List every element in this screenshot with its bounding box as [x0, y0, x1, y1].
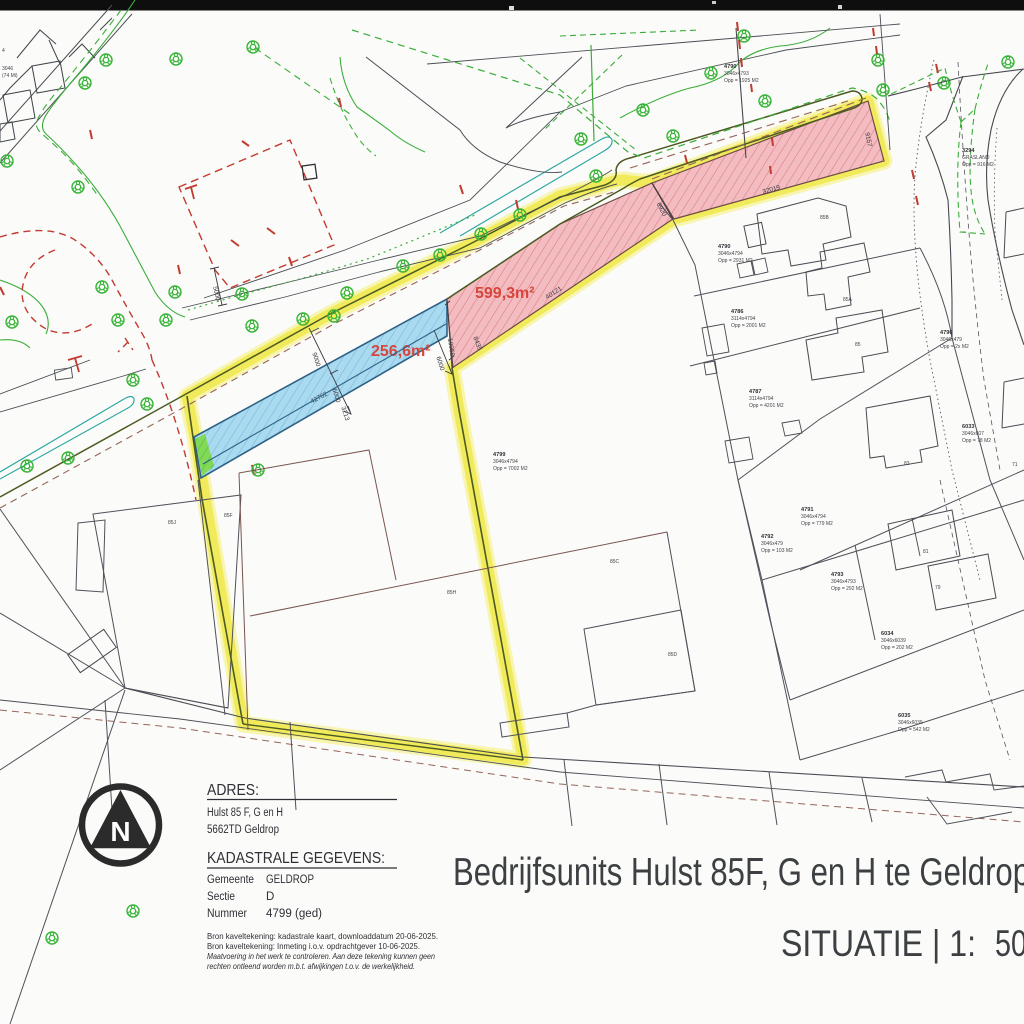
- svg-text:3114x4794: 3114x4794: [749, 396, 774, 402]
- svg-text:3046x607: 3046x607: [962, 431, 984, 437]
- svg-text:SITUATIE | 1:: SITUATIE | 1:: [781, 923, 976, 964]
- svg-text:3046x6039: 3046x6039: [881, 638, 906, 644]
- svg-text:3046x4793: 3046x4793: [831, 579, 856, 585]
- svg-text:6033: 6033: [962, 424, 974, 430]
- svg-text:Opp = 103 M2: Opp = 103 M2: [761, 548, 793, 554]
- svg-text:85B: 85B: [820, 215, 830, 221]
- svg-text:4: 4: [2, 48, 5, 54]
- svg-text:N: N: [110, 816, 130, 847]
- svg-text:Opp = 7002 M2: Opp = 7002 M2: [493, 466, 528, 472]
- svg-text:Sectie: Sectie: [207, 891, 235, 903]
- svg-text:500: 500: [995, 923, 1024, 964]
- svg-text:85H: 85H: [447, 590, 457, 596]
- svg-text:3046x4794: 3046x4794: [493, 459, 518, 465]
- svg-text:4790: 4790: [724, 64, 736, 70]
- svg-text:Bedrijfsunits Hulst 85F, G en: Bedrijfsunits Hulst 85F, G en H te Geldr…: [453, 851, 1024, 894]
- svg-text:85A: 85A: [843, 297, 853, 303]
- svg-text:KADASTRALE GEGEVENS:: KADASTRALE GEGEVENS:: [207, 850, 385, 867]
- svg-text:6034: 6034: [881, 631, 894, 637]
- svg-text:Opp = 2001 M2: Opp = 2001 M2: [731, 323, 766, 329]
- svg-text:4799 (ged): 4799 (ged): [266, 908, 322, 920]
- svg-text:Gemeente: Gemeente: [207, 874, 254, 886]
- svg-text:4787: 4787: [749, 389, 761, 395]
- svg-text:79: 79: [935, 585, 941, 591]
- svg-text:GELDROP: GELDROP: [266, 874, 314, 886]
- svg-text:Opp = 779 M2: Opp = 779 M2: [801, 521, 833, 527]
- svg-text:4790: 4790: [940, 330, 952, 336]
- svg-text:Opp = 4201 M2: Opp = 4201 M2: [749, 403, 784, 409]
- svg-text:83: 83: [904, 461, 910, 467]
- svg-text:599,3m²: 599,3m²: [475, 285, 535, 302]
- svg-text:4790: 4790: [718, 244, 730, 250]
- svg-text:Opp = 542 M2: Opp = 542 M2: [898, 727, 930, 733]
- svg-text:Bron kaveltekening: kadastrale: Bron kaveltekening: kadastrale kaart, do…: [207, 932, 438, 941]
- svg-text:Nummer: Nummer: [207, 908, 247, 920]
- svg-text:rechten ontleend worden m.b.t.: rechten ontleend worden m.b.t. afwijking…: [207, 962, 415, 971]
- svg-text:GRASLAND: GRASLAND: [962, 155, 990, 161]
- svg-text:81: 81: [923, 549, 929, 555]
- svg-text:4799: 4799: [493, 452, 505, 458]
- svg-text:Opp = 202 M2: Opp = 202 M2: [881, 645, 913, 651]
- svg-text:4786: 4786: [731, 309, 743, 315]
- svg-text:Opp = 2x M2: Opp = 2x M2: [940, 344, 969, 350]
- svg-text:6035: 6035: [898, 713, 910, 719]
- svg-text:3046x479: 3046x479: [940, 337, 962, 343]
- svg-text:4793: 4793: [831, 572, 843, 578]
- svg-text:3046x4794: 3046x4794: [801, 514, 826, 520]
- svg-text:4791: 4791: [801, 507, 813, 513]
- svg-text:Opp = 916 M2: Opp = 916 M2: [962, 162, 994, 168]
- svg-text:3046x6035: 3046x6035: [898, 720, 923, 726]
- svg-text:71: 71: [1012, 462, 1018, 468]
- svg-text:85: 85: [855, 342, 861, 348]
- svg-text:85F: 85F: [224, 513, 233, 519]
- svg-text:Opp = 78 M2: Opp = 78 M2: [962, 438, 991, 444]
- svg-text:Bron kaveltekening: Inmeting i: Bron kaveltekening: Inmeting i.o.v. opdr…: [207, 942, 420, 951]
- svg-text:Maatvoering in het werk te con: Maatvoering in het werk te controleren. …: [207, 952, 435, 961]
- svg-text:Opp = 292 M2: Opp = 292 M2: [831, 586, 863, 592]
- svg-text:3294: 3294: [962, 148, 975, 154]
- svg-text:Opp = 1925 M2: Opp = 1925 M2: [724, 78, 759, 84]
- svg-text:256,6m²: 256,6m²: [371, 343, 431, 360]
- svg-text:3114x4794: 3114x4794: [731, 316, 756, 322]
- svg-text:ADRES:: ADRES:: [207, 782, 259, 799]
- svg-text:(74 Mi): (74 Mi): [2, 73, 18, 79]
- svg-text:4792: 4792: [761, 534, 773, 540]
- svg-text:85C: 85C: [610, 559, 620, 565]
- svg-text:3046: 3046: [2, 66, 13, 72]
- svg-text:3046x4793: 3046x4793: [724, 71, 749, 77]
- svg-text:Hulst 85 F, G en H: Hulst 85 F, G en H: [207, 807, 283, 819]
- svg-text:D: D: [266, 891, 274, 903]
- svg-text:85D: 85D: [668, 652, 678, 658]
- svg-text:85J: 85J: [168, 520, 177, 526]
- svg-text:3046x4794: 3046x4794: [718, 251, 743, 257]
- svg-text:Opp = 2931 M2: Opp = 2931 M2: [718, 258, 753, 264]
- svg-text:3046x479: 3046x479: [761, 541, 783, 547]
- svg-text:5662TD Geldrop: 5662TD Geldrop: [207, 824, 279, 836]
